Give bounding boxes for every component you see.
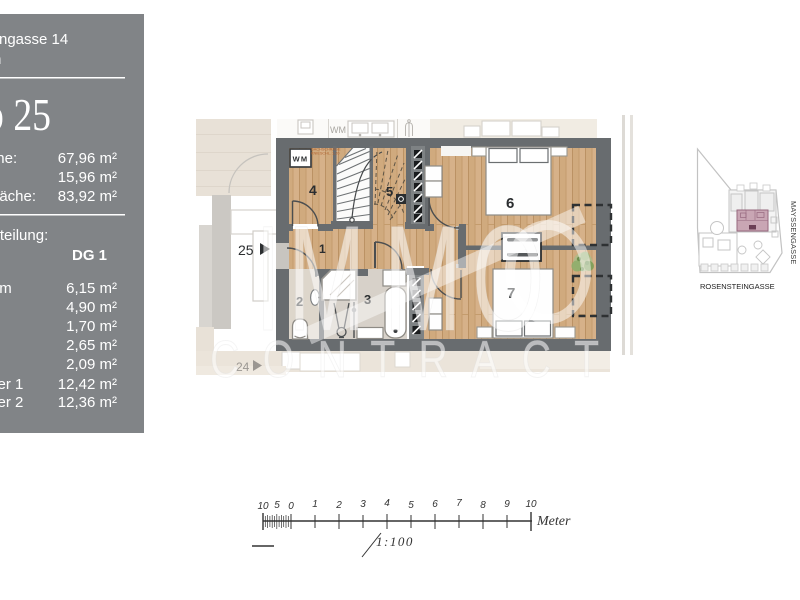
- svg-text:6: 6: [432, 499, 438, 510]
- svg-text:5: 5: [408, 500, 414, 511]
- svg-text:DG 1: DG 1: [72, 247, 107, 264]
- svg-text:ROSENSTEINGASSE: ROSENSTEINGASSE: [700, 282, 775, 291]
- svg-text:Top 25: Top 25: [0, 91, 51, 141]
- svg-text:Raumaufteilung:: Raumaufteilung:: [0, 227, 48, 244]
- svg-text:7: 7: [456, 498, 462, 509]
- svg-text:3: 3: [360, 499, 366, 510]
- svg-text:1: 1: [312, 499, 318, 510]
- svg-text:10: 10: [257, 501, 269, 512]
- svg-text:Meter: Meter: [536, 514, 571, 529]
- svg-text:2: 2: [335, 500, 342, 511]
- svg-text:Vorraum: Vorraum: [0, 280, 12, 297]
- svg-text:Zimmer 1: Zimmer 1: [0, 376, 23, 393]
- svg-text:ngasse 14: ngasse 14: [0, 31, 68, 48]
- svg-text:67,96 m²: 67,96 m²: [58, 150, 117, 167]
- svg-text:2,65 m²: 2,65 m²: [66, 337, 117, 354]
- svg-text:12,42 m²: 12,42 m²: [58, 376, 117, 393]
- svg-text:10: 10: [525, 499, 537, 510]
- svg-text:Nutzfläche:: Nutzfläche:: [0, 188, 36, 205]
- svg-text:CONTRACT: CONTRACT: [210, 330, 622, 388]
- svg-text:6,15 m²: 6,15 m²: [66, 280, 117, 297]
- svg-text:n: n: [0, 51, 1, 68]
- svg-text:12,36 m²: 12,36 m²: [58, 394, 117, 411]
- svg-text:KNIESCHL. 1,20: KNIESCHL. 1,20: [311, 152, 340, 156]
- svg-text:4,90 m²: 4,90 m²: [66, 299, 117, 316]
- svg-text:MAYSSENGASSE: MAYSSENGASSE: [789, 201, 798, 264]
- svg-text:4: 4: [384, 498, 390, 509]
- svg-text:9: 9: [504, 499, 510, 510]
- svg-text:25: 25: [238, 242, 254, 258]
- svg-text:Wohnfläche:: Wohnfläche:: [0, 150, 17, 167]
- svg-text:Zimmer 2: Zimmer 2: [0, 394, 23, 411]
- svg-text:0: 0: [288, 501, 294, 512]
- svg-text:15,96 m²: 15,96 m²: [58, 169, 117, 186]
- svg-text:WM: WM: [330, 125, 346, 135]
- svg-text:1,70 m²: 1,70 m²: [66, 318, 117, 335]
- svg-text:2,09 m²: 2,09 m²: [66, 356, 117, 373]
- svg-text:83,92 m²: 83,92 m²: [58, 188, 117, 205]
- svg-text:5: 5: [274, 500, 280, 511]
- svg-text:1:100: 1:100: [376, 534, 414, 549]
- svg-text:8: 8: [480, 500, 486, 511]
- svg-text:WM: WM: [293, 155, 309, 164]
